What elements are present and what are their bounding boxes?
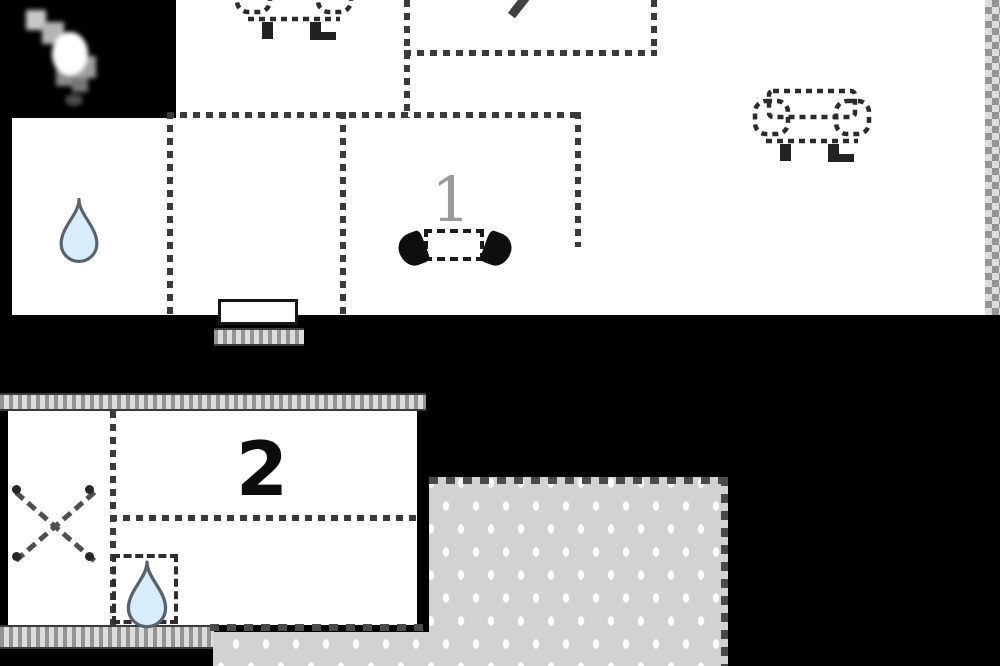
wall-bedroom-bottom (404, 50, 657, 56)
sofa-icon (752, 86, 872, 164)
terrace-border-right (721, 477, 728, 666)
annex-bottom-wall-hatch (0, 625, 214, 649)
entrance-door (218, 299, 298, 325)
terrace-border-top (429, 477, 728, 484)
water-drop-icon (125, 560, 169, 630)
living-room-number: 1 (428, 170, 474, 230)
water-drop-icon (58, 196, 100, 266)
cross-mark-icon (14, 487, 94, 561)
cursor-icon (20, 4, 115, 109)
entrance-steps-hatch (214, 328, 304, 346)
wood-stove-icon (424, 229, 484, 261)
floorplan-canvas: 1 2 (0, 0, 1000, 666)
wall-bedroom-right (651, 0, 657, 56)
wall-main-horizontal (167, 112, 582, 118)
wall-top-room-divider (404, 0, 410, 118)
annex-bottom-dashed-wall (210, 624, 429, 631)
wall-hall-divider (340, 112, 346, 315)
right-wall-hatch (985, 0, 1000, 315)
bedroom-number: 2 (222, 432, 302, 507)
cross-dot (12, 552, 21, 561)
sofa-icon (234, 0, 354, 42)
cross-dot (12, 485, 21, 494)
wall-bathroom-divider (167, 112, 173, 315)
cross-dot (85, 485, 94, 494)
annex-room-divider (110, 515, 417, 521)
annex-top-wall-hatch (0, 393, 426, 411)
cross-dot (85, 552, 94, 561)
wall-kitchen-divider (575, 112, 581, 247)
